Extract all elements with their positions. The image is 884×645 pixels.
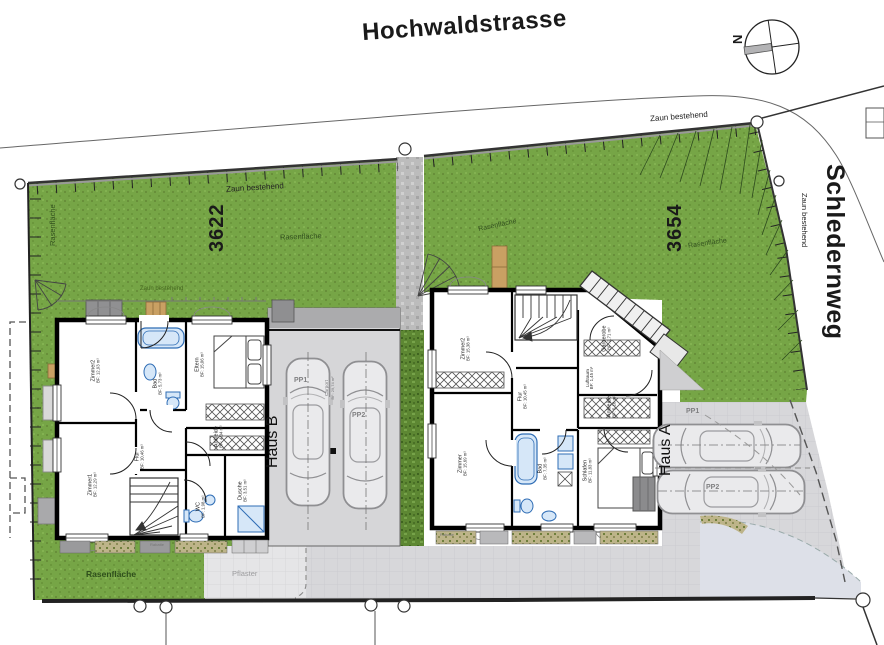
staircase	[130, 478, 178, 535]
sink	[542, 511, 556, 521]
carport-label: Carport BF: 29,74 m²	[325, 360, 335, 416]
car-pp1-haus-a	[654, 421, 801, 471]
north-needle	[744, 44, 772, 55]
exterior-terrace-block	[38, 498, 55, 524]
double-bed	[214, 336, 264, 388]
room-label-dusche-b: Dusche BF: 3,51 m²	[237, 463, 248, 519]
site-plan: Hochwaldstrasse Schledernweg N 3622 3654…	[0, 0, 884, 645]
room-label-eltern-b: Eltern BF: 15,06 m²	[194, 337, 205, 393]
room-label-luftraum-a: Luftraum BF: 1,45 m²	[585, 350, 595, 406]
haus-a-label: Haus A	[657, 424, 675, 476]
room-label-schlafen-a: Schlafen BF: 11,83 m²	[582, 443, 593, 499]
appliance-box	[558, 472, 572, 486]
room-label-bad-b: Bad BF: 5,73 m²	[152, 356, 163, 412]
room-label-zimmer1-a: Zimmer BF: 15,69 m²	[457, 436, 468, 492]
room-label-zimmer1-b: Zimmer1 BF: 12,29 m²	[87, 457, 98, 513]
planting-strip-haus-a	[436, 531, 658, 544]
haus-b-label: Haus B	[264, 416, 282, 468]
room-label-ankleide-a: Ankleide BF: 5,18 m²	[606, 379, 617, 435]
car-pp2-haus-a	[658, 467, 805, 517]
pp2-label-haus-b: PP2	[352, 412, 365, 419]
pp2-label-haus-a: PP2	[706, 484, 719, 491]
neighbor-outline-dashed	[10, 322, 26, 538]
dryer	[558, 454, 573, 469]
street-label-schledernweg: Schledernweg	[820, 164, 849, 340]
parcel-number-3622: 3622	[206, 204, 229, 253]
room-label-wc-b: WC BF: 1,98 m²	[195, 479, 206, 535]
north-compass	[744, 20, 799, 74]
room-label-bad-a: Bad BF: 7,35 m²	[537, 441, 548, 497]
room-label-ankleide-b: Ankleide BF: 4,04 m²	[213, 409, 224, 465]
parcel-number-3654: 3654	[664, 204, 687, 253]
planting-label-2: Rabatte	[440, 532, 454, 537]
car-pp2-haus-b	[340, 362, 390, 509]
room-label-zimmer2-a: Zimmer2 BF: 15,38 m²	[460, 321, 471, 377]
bathtub	[515, 434, 537, 484]
site-plan-drawing	[0, 0, 884, 645]
gravel-path	[396, 157, 423, 333]
fence-label-east: Zaun bestehend	[800, 193, 809, 247]
planting-label-1: Rabatte	[150, 542, 164, 547]
neighbor-structure	[866, 108, 884, 138]
room-label-flur-b: Flur BF: 10,46 m²	[134, 429, 145, 485]
lawn-label-mid: Rasenfläche	[280, 231, 322, 241]
paving-label: Pflaster	[232, 569, 257, 578]
room-label-garderobe-a: Garderobe BF: 2,71 m²	[601, 311, 612, 367]
room-label-flur-a: Flur BF: 10,45 m²	[517, 369, 528, 425]
room-label-zimmer2-b: Zimmer2 BF: 12,93 m²	[90, 343, 101, 399]
north-label: N	[730, 35, 745, 44]
bathtub	[138, 328, 184, 348]
toilet	[514, 499, 533, 513]
lawn-label-south: Rasenfläche	[86, 569, 136, 579]
pp1-label-haus-b: PP1	[294, 377, 307, 384]
waste-bin-box	[633, 477, 655, 511]
washer	[558, 436, 573, 451]
staircase	[515, 295, 577, 341]
pp1-label-haus-a: PP1	[686, 408, 699, 415]
lawn-label-west: Rasenfläche	[48, 204, 57, 246]
fence-label-garden: Zaun bestehend	[140, 286, 183, 292]
